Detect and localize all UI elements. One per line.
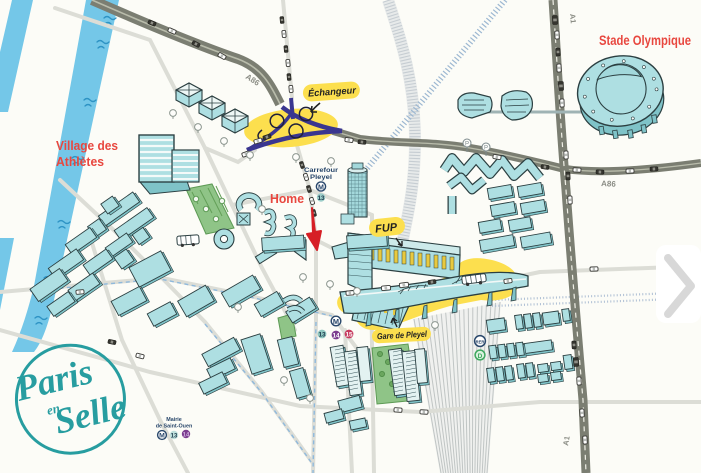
svg-text:Pleyel: Pleyel: [310, 174, 332, 181]
svg-text:RER: RER: [476, 339, 485, 344]
svg-text:Village des: Village des: [56, 138, 118, 153]
svg-text:FUP: FUP: [375, 221, 399, 235]
svg-text:A86: A86: [601, 179, 617, 189]
svg-text:D: D: [478, 353, 483, 360]
svg-text:14: 14: [183, 432, 190, 438]
svg-text:M: M: [318, 183, 324, 191]
svg-text:Mairie: Mairie: [166, 417, 182, 423]
svg-text:Stade Olympique: Stade Olympique: [599, 33, 691, 48]
svg-text:Home: Home: [270, 191, 304, 206]
svg-text:13: 13: [171, 433, 178, 439]
svg-text:de Saint-Ouen: de Saint-Ouen: [156, 424, 193, 430]
svg-text:13: 13: [317, 195, 325, 202]
svg-text:13: 13: [318, 331, 326, 338]
svg-text:14: 14: [332, 332, 340, 339]
svg-text:M: M: [159, 433, 165, 440]
svg-text:Athlètes: Athlètes: [56, 154, 104, 169]
svg-text:A1: A1: [568, 13, 578, 23]
svg-text:P: P: [484, 145, 488, 151]
svg-text:P: P: [465, 141, 469, 147]
svg-text:15: 15: [345, 331, 353, 338]
svg-text:M: M: [333, 317, 339, 326]
svg-text:A1: A1: [561, 435, 572, 446]
svg-text:Carrefour: Carrefour: [304, 167, 339, 174]
